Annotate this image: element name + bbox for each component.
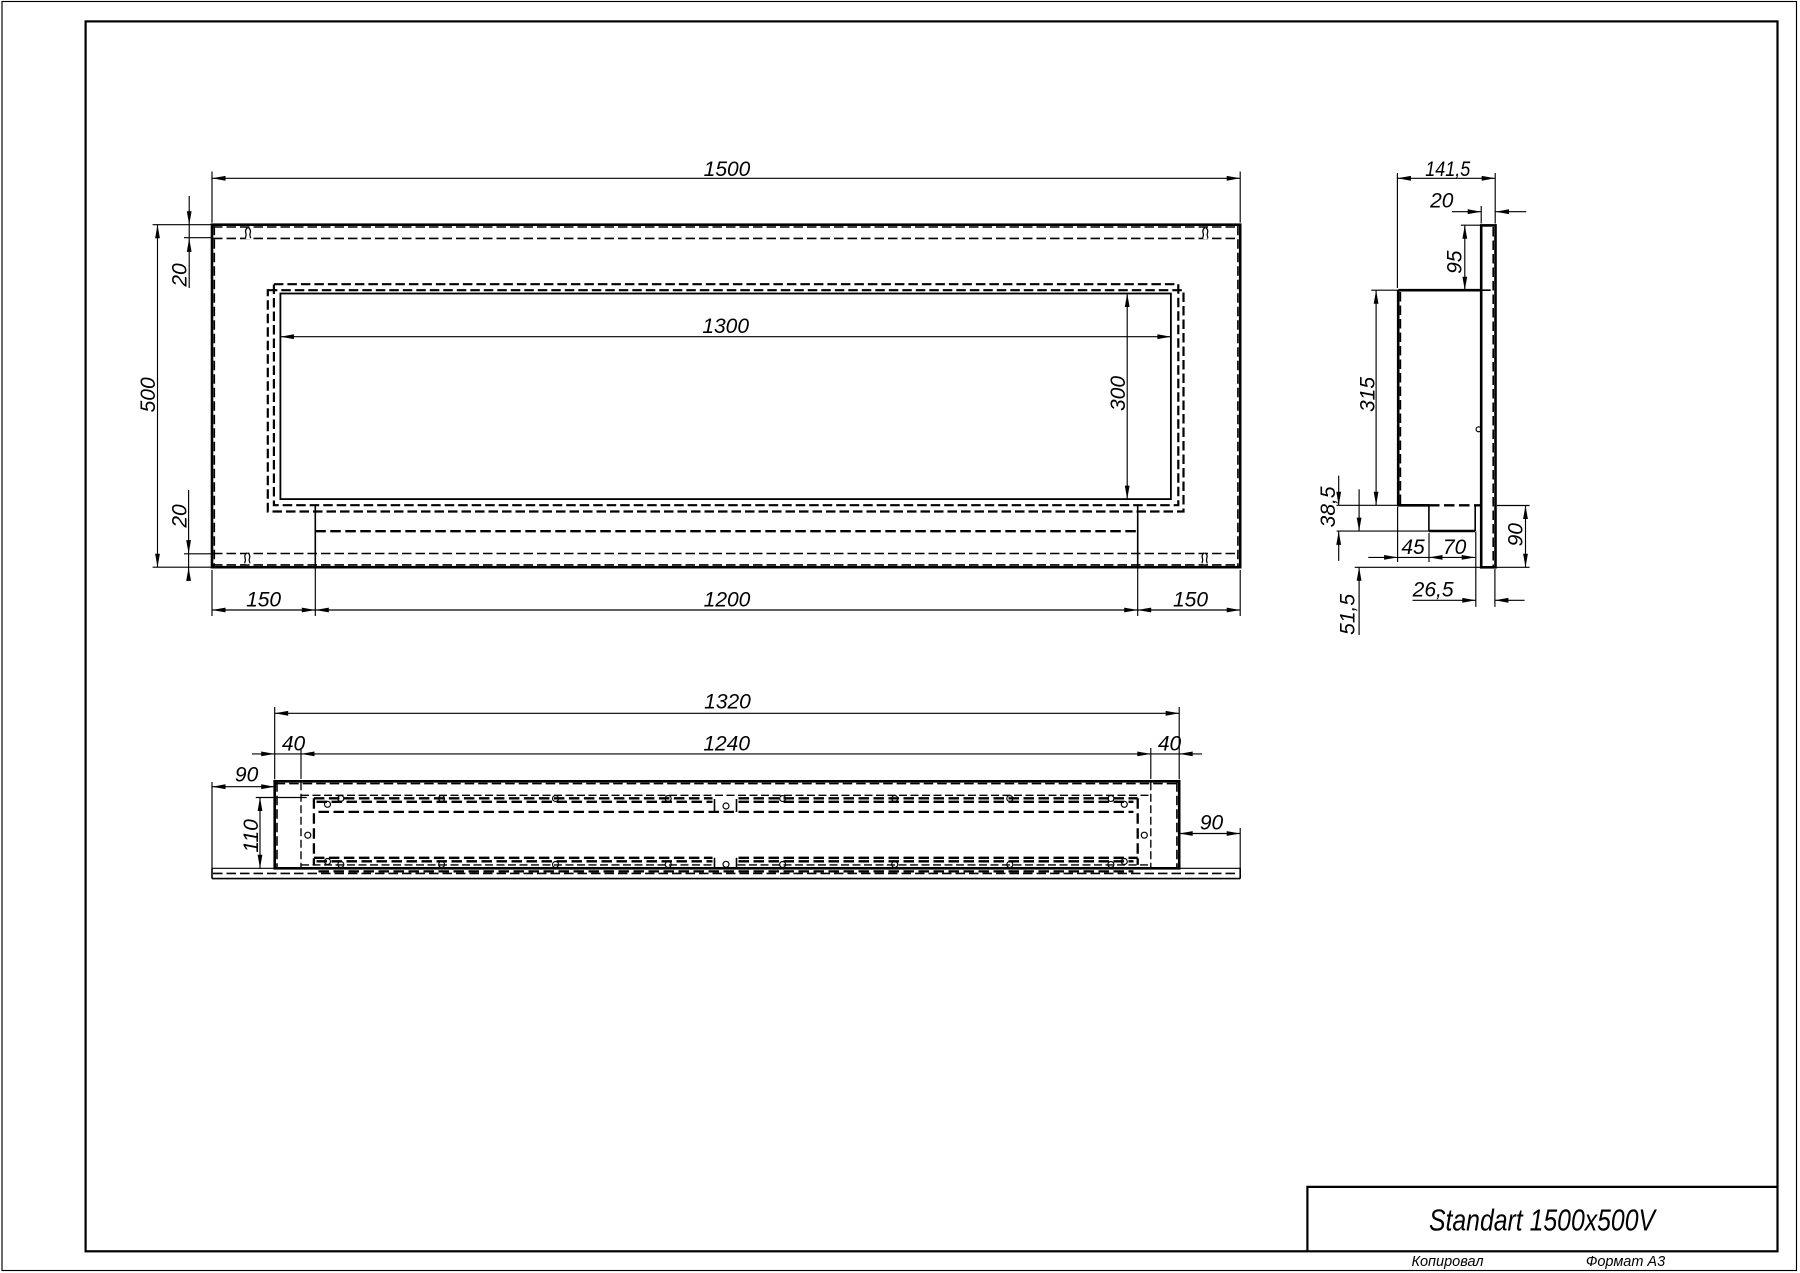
svg-text:150: 150: [1173, 588, 1208, 611]
svg-text:90: 90: [1200, 812, 1224, 835]
svg-text:1200: 1200: [704, 588, 751, 611]
svg-text:51,5: 51,5: [1337, 594, 1360, 635]
svg-text:38,5: 38,5: [1317, 486, 1340, 527]
svg-text:Формат А3: Формат А3: [1586, 1254, 1665, 1270]
svg-text:1240: 1240: [703, 733, 750, 756]
svg-text:90: 90: [1505, 523, 1528, 547]
svg-text:20: 20: [169, 263, 192, 288]
svg-text:Standart 1500x500V: Standart 1500x500V: [1429, 1203, 1657, 1237]
svg-text:1320: 1320: [704, 690, 751, 713]
svg-text:1300: 1300: [702, 315, 749, 338]
svg-text:1500: 1500: [704, 158, 751, 181]
svg-text:300: 300: [1107, 376, 1130, 411]
svg-text:150: 150: [246, 588, 281, 611]
svg-text:110: 110: [240, 819, 263, 853]
svg-text:500: 500: [137, 377, 160, 412]
svg-text:20: 20: [168, 504, 191, 529]
svg-text:70: 70: [1443, 536, 1467, 559]
svg-text:26,5: 26,5: [1412, 578, 1454, 601]
svg-text:90: 90: [235, 763, 259, 786]
svg-text:40: 40: [282, 733, 306, 756]
svg-text:141,5: 141,5: [1425, 158, 1470, 181]
svg-text:40: 40: [1158, 733, 1182, 756]
svg-text:20: 20: [1429, 190, 1454, 213]
svg-text:Копировал: Копировал: [1411, 1254, 1483, 1270]
svg-text:315: 315: [1356, 377, 1379, 412]
svg-text:45: 45: [1401, 536, 1425, 559]
svg-text:95: 95: [1444, 250, 1467, 274]
